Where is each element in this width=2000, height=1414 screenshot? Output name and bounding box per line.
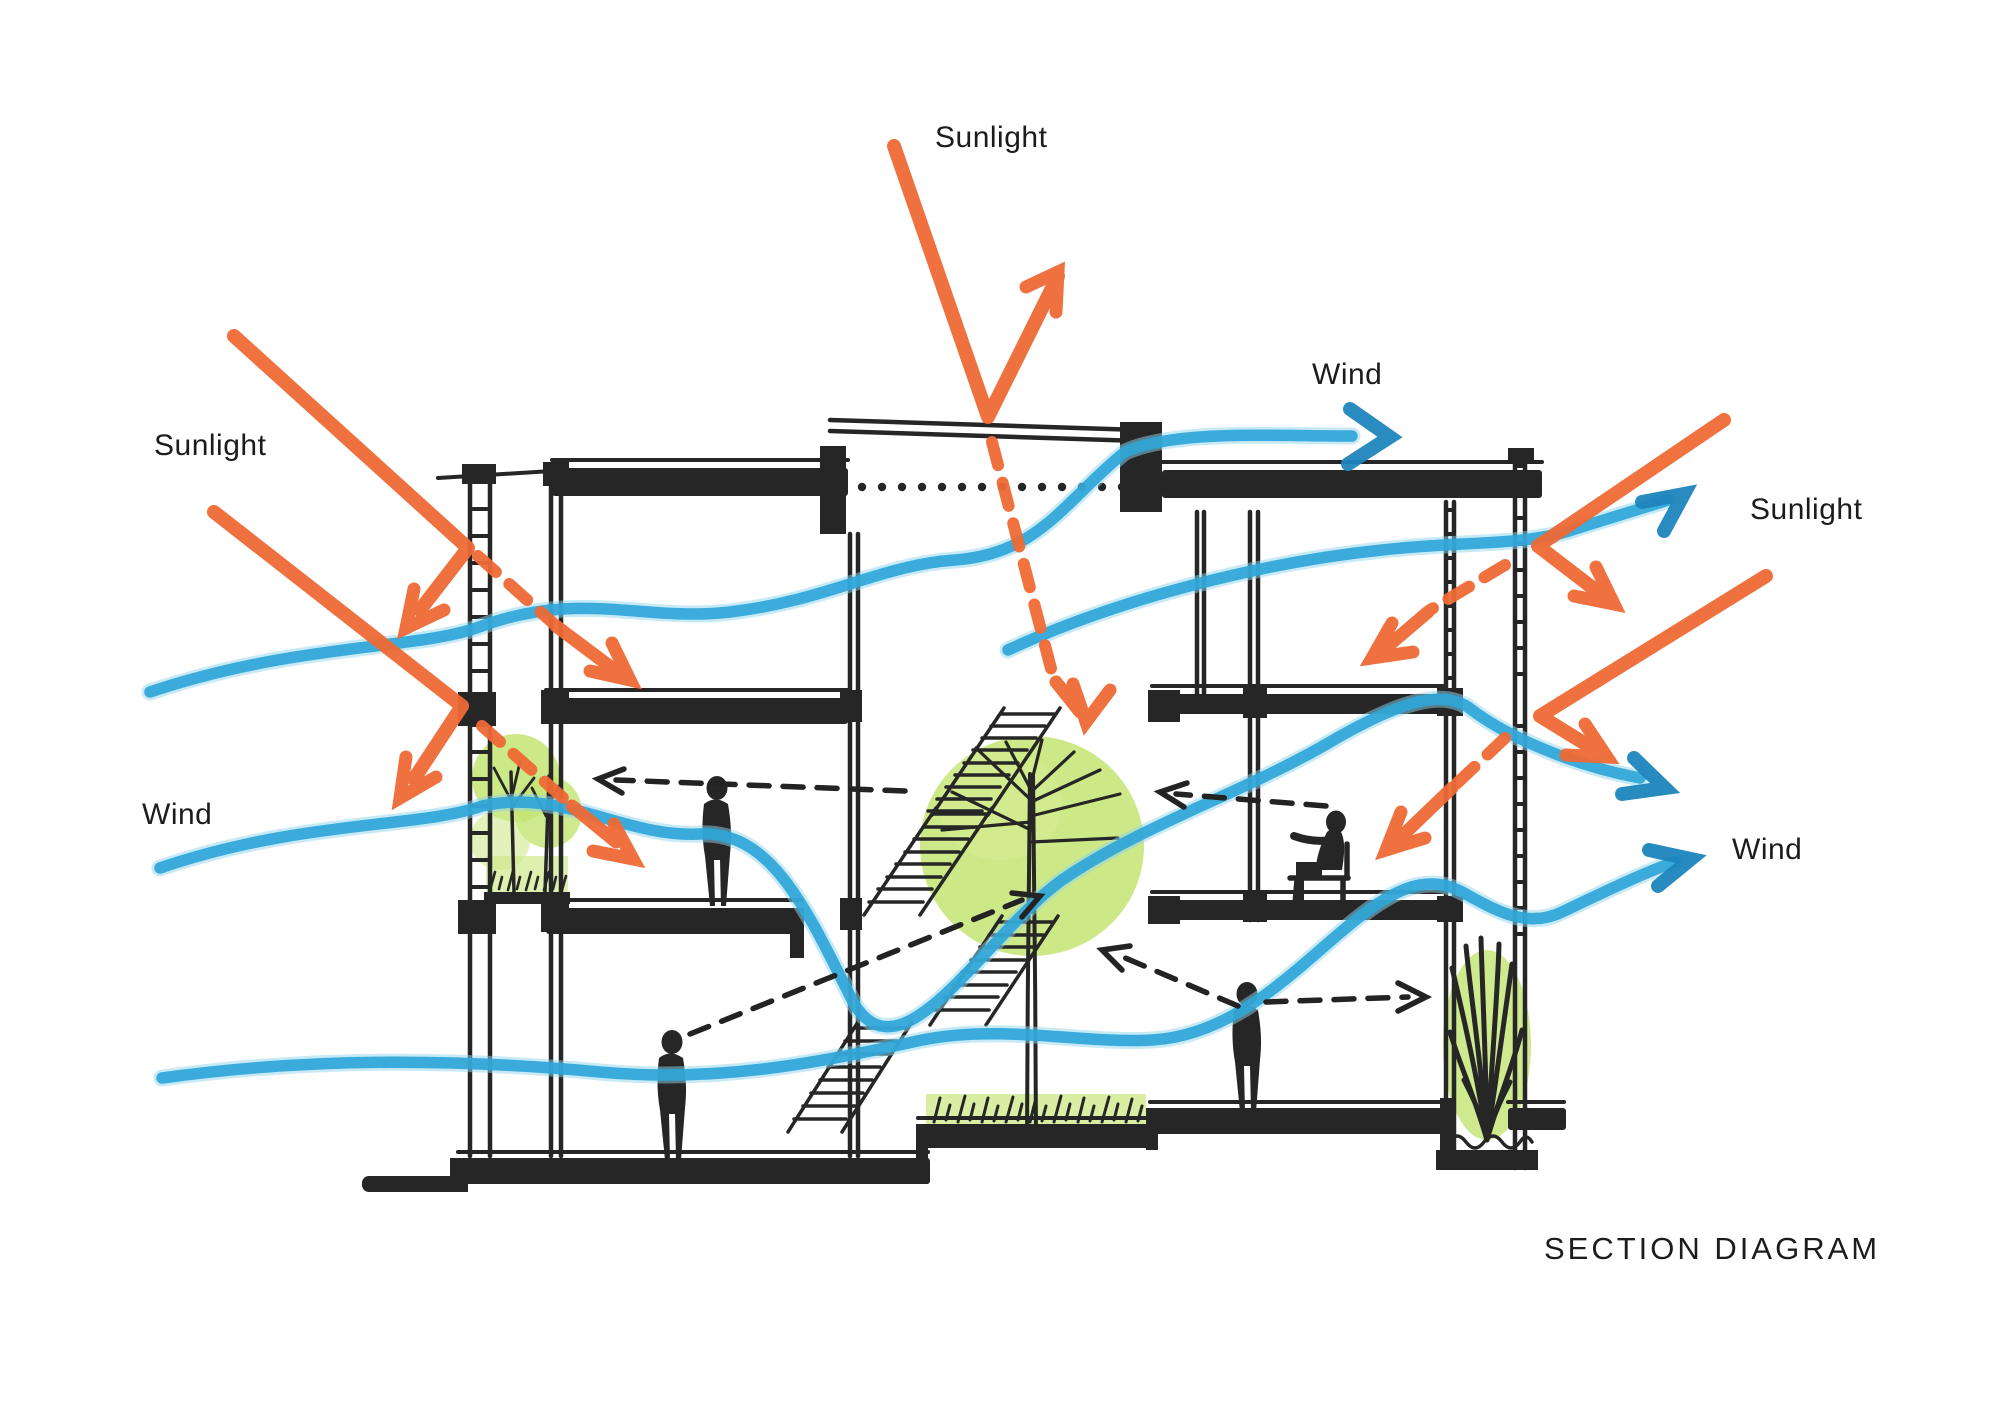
person-seated-level3: [1290, 811, 1348, 905]
seated-arm: [1294, 836, 1331, 841]
left-roof-slab: [552, 468, 848, 496]
site-ledge: [362, 1176, 464, 1192]
right-roof-slab: [1162, 470, 1542, 498]
right-upper-wall: [1197, 512, 1204, 694]
balcony-planter-slab: [484, 892, 570, 904]
airflow-line: [1116, 954, 1238, 1006]
section-diagram-canvas: Sunlight Wind Sunlight Sunlight Wind Win…: [0, 0, 2000, 1414]
label-sunlight-left: Sunlight: [154, 429, 267, 462]
sun-elbow: [556, 626, 612, 668]
ground-slab-right: [1148, 1108, 1448, 1134]
airflow-line: [1266, 997, 1408, 1002]
wall-cap: [543, 462, 569, 486]
label-wind-right: Wind: [1732, 833, 1802, 866]
label-wind-left: Wind: [142, 798, 212, 831]
sun-arrowhead-icon: [1073, 684, 1110, 722]
label-sunlight-top: Sunlight: [935, 121, 1048, 154]
airflow-line: [616, 780, 905, 791]
canopy-line: [830, 431, 1140, 441]
wall-node: [1243, 688, 1267, 718]
sun-ray-left-upper: [234, 336, 468, 610]
person-standing-ground-left: [657, 1030, 686, 1160]
section-diagram-page: Sunlight Wind Sunlight Sunlight Wind Win…: [0, 0, 2000, 1414]
step-face: [1146, 1108, 1158, 1150]
site-step: [450, 1158, 468, 1192]
label-sunlight-right: Sunlight: [1750, 493, 1863, 526]
left-slab-level3: [546, 908, 802, 934]
sun-dashed-right-lower: [1452, 738, 1505, 788]
atrium-tree-canopy-highlight: [938, 750, 1062, 860]
sun-dashed-right-upper: [1430, 565, 1505, 610]
planter-soil-line: [1448, 1136, 1532, 1148]
slab-end-blob: [1148, 896, 1180, 924]
label-wind-top: Wind: [1312, 358, 1382, 391]
slab-end-blob: [1148, 690, 1180, 722]
wall-node: [1243, 894, 1267, 922]
ground-slab-left: [456, 1158, 930, 1184]
wall-node: [541, 690, 569, 724]
page-title: SECTION DIAGRAM: [1544, 1231, 1880, 1266]
left-slab-level2: [546, 698, 848, 724]
